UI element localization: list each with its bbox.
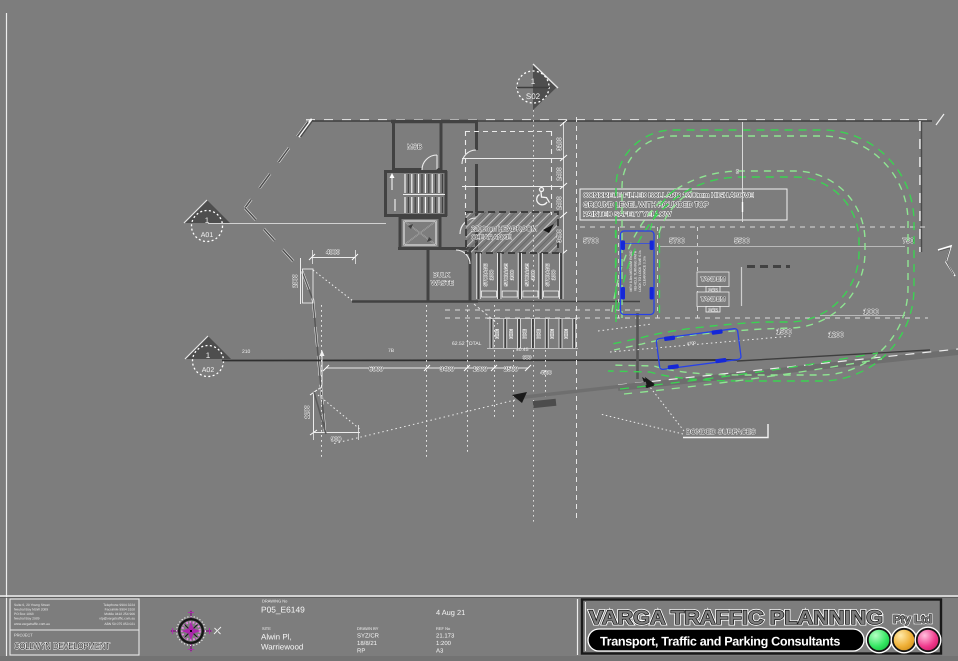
svg-text:BIKE: BIKE — [550, 329, 555, 339]
svg-text:1: 1 — [531, 77, 536, 86]
svg-text:2500: 2500 — [504, 366, 519, 373]
svg-text:900: 900 — [523, 355, 532, 361]
svg-text:STORAGE: STORAGE — [524, 264, 529, 286]
svg-text:1300: 1300 — [473, 366, 488, 373]
svg-text:BIKE: BIKE — [495, 329, 500, 339]
svg-text:3400: 3400 — [556, 229, 563, 243]
svg-text:A02: A02 — [202, 367, 215, 374]
svg-text:Transport, Traffic and Parking: Transport, Traffic and Parking Consultan… — [600, 635, 840, 649]
svg-text:TANDEM: TANDEM — [701, 296, 726, 303]
svg-text:BULK: BULK — [433, 272, 451, 279]
svg-text:BONDED SURFACES: BONDED SURFACES — [686, 429, 756, 436]
svg-text:Facsimile 9904 3108: Facsimile 9904 3108 — [105, 608, 136, 612]
svg-text:2400: 2400 — [556, 196, 563, 210]
svg-text:CLEARANCE: CLEARANCE — [471, 235, 512, 242]
svg-text:BIKE: BIKE — [564, 329, 569, 339]
svg-text:1: 1 — [206, 351, 211, 360]
svg-text:MSB: MSB — [407, 144, 423, 151]
svg-text:SITE: SITE — [262, 626, 271, 631]
svg-text:Neutral Bay NSW 2089: Neutral Bay NSW 2089 — [14, 608, 48, 612]
svg-text:1200: 1200 — [828, 332, 844, 339]
svg-text:±0.45: ±0.45 — [516, 347, 529, 353]
svg-text:STORAGE: STORAGE — [504, 264, 509, 286]
svg-text:PROJECT: PROJECT — [14, 633, 33, 638]
svg-text:A3: A3 — [436, 648, 444, 655]
svg-text:4 Aug 21: 4 Aug 21 — [436, 608, 465, 617]
svg-text:90: 90 — [735, 168, 740, 174]
svg-text:vtp@vargatraffic.com.au: vtp@vargatraffic.com.au — [99, 617, 135, 621]
svg-text:5500: 5500 — [734, 238, 750, 245]
svg-text:4500: 4500 — [540, 370, 551, 376]
svg-text:5700: 5700 — [669, 238, 685, 245]
svg-text:www.vargatraffic.com.au: www.vargatraffic.com.au — [14, 622, 50, 626]
svg-text:ABN 50 075 853 021: ABN 50 075 853 021 — [104, 622, 135, 626]
svg-text:WASTE: WASTE — [431, 280, 455, 287]
svg-text:Telephone 9904 3224: Telephone 9904 3224 — [103, 603, 135, 607]
svg-text:MRV 8.8m MEDIUM RIGID: MRV 8.8m MEDIUM RIGID — [629, 250, 633, 292]
svg-text:Mobile 0418 254 906: Mobile 0418 254 906 — [104, 612, 135, 616]
svg-text:S02: S02 — [526, 92, 541, 101]
svg-text:CLEARANCE 0.3m: CLEARANCE 0.3m — [643, 256, 647, 285]
svg-text:COLLWYN DEVELOPMENT: COLLWYN DEVELOPMENT — [14, 641, 110, 651]
svg-text:3100: 3100 — [556, 137, 563, 151]
svg-text:TANDEM: TANDEM — [701, 276, 726, 283]
svg-text:1500: 1500 — [776, 329, 792, 336]
svg-text:1000: 1000 — [863, 309, 879, 316]
svg-text:5700: 5700 — [583, 238, 599, 245]
svg-text:GROUND LEVEL WITH ROUNDED TOP: GROUND LEVEL WITH ROUNDED TOP — [583, 200, 709, 209]
svg-text:PO Box 1868: PO Box 1868 — [14, 612, 34, 616]
svg-text:210: 210 — [242, 349, 251, 355]
svg-text:VEHICLE TURNING PATH: VEHICLE TURNING PATH — [634, 250, 638, 291]
svg-text:1000: 1000 — [551, 269, 556, 280]
svg-text:RP: RP — [357, 648, 365, 655]
svg-text:BIKE: BIKE — [522, 329, 527, 339]
svg-text:DRAWING No: DRAWING No — [262, 599, 288, 604]
svg-text:1:200: 1:200 — [436, 640, 452, 647]
svg-text:Neutral Bay 2089: Neutral Bay 2089 — [14, 617, 40, 621]
svg-text:2000: 2000 — [292, 274, 299, 288]
svg-text:62.52 TOTAL: 62.52 TOTAL — [452, 341, 482, 347]
svg-text:STORAGE: STORAGE — [545, 264, 550, 286]
svg-text:Alwin Pl,: Alwin Pl, — [261, 633, 292, 642]
svg-text:STORAGE: STORAGE — [483, 264, 488, 286]
svg-text:7B: 7B — [388, 348, 395, 354]
svg-text:900: 900 — [331, 436, 342, 443]
svg-text:CAR: CAR — [708, 308, 718, 313]
svg-text:A01: A01 — [201, 232, 214, 239]
svg-text:BIKE: BIKE — [508, 329, 513, 339]
svg-text:Suite 6, 20 Young Street: Suite 6, 20 Young Street — [14, 603, 50, 607]
svg-text:DRAWN BY: DRAWN BY — [357, 626, 379, 631]
svg-text:2400: 2400 — [556, 167, 563, 181]
svg-text:1: 1 — [205, 216, 210, 225]
svg-text:18/8/21: 18/8/21 — [357, 640, 378, 647]
svg-text:1200: 1200 — [304, 405, 311, 419]
svg-text:2200mm HEADROOM: 2200mm HEADROOM — [471, 226, 537, 233]
svg-text:21.173: 21.173 — [436, 633, 455, 640]
svg-text:REF No: REF No — [436, 626, 451, 631]
svg-text:4000: 4000 — [326, 249, 340, 256]
svg-text:LOCK TO LOCK TIME 6.0s: LOCK TO LOCK TIME 6.0s — [638, 250, 642, 292]
svg-text:1000: 1000 — [510, 269, 515, 280]
svg-text:1000: 1000 — [489, 269, 494, 280]
svg-text:P05_E6149: P05_E6149 — [261, 605, 305, 615]
svg-text:BIKE: BIKE — [536, 329, 541, 339]
svg-text:SYZ/CR: SYZ/CR — [357, 633, 380, 640]
svg-text:Pty Ltd: Pty Ltd — [893, 614, 932, 626]
svg-text:3400: 3400 — [440, 366, 455, 373]
svg-text:1000: 1000 — [530, 269, 535, 280]
svg-text:6000: 6000 — [369, 366, 384, 373]
svg-text:Warriewood: Warriewood — [261, 643, 303, 652]
svg-text:VARGA TRAFFIC PLANNING: VARGA TRAFFIC PLANNING — [589, 607, 883, 629]
